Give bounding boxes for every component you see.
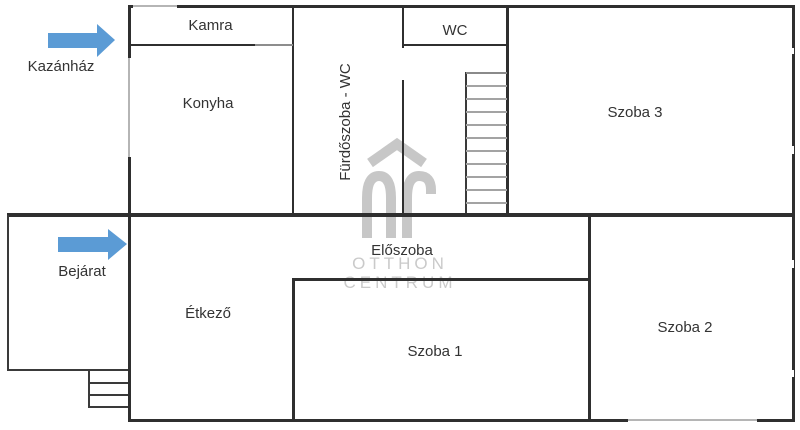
room-label-wc: WC: [403, 12, 507, 48]
bejarat-arrow-icon: [58, 237, 108, 252]
room-label-szoba3: Szoba 3: [520, 7, 750, 217]
wall-szoba1-left: [292, 278, 295, 421]
kazanhaz-arrow-icon: [48, 33, 97, 48]
room-label-eloszoba: Előszoba: [352, 240, 452, 260]
annotation-label-bejarat: Bejárat: [32, 261, 132, 281]
porch-left-wall: [7, 215, 9, 371]
stair-tread: [466, 111, 507, 113]
staircase-edge: [465, 72, 467, 213]
window-segment: [628, 419, 757, 421]
kazanhaz-arrow-head-icon: [97, 24, 115, 57]
window-notch: [792, 48, 794, 54]
room-label-furdoszoba: Fürdőszoba - WC: [335, 42, 355, 202]
stair-tread: [466, 85, 507, 87]
room-label-szoba1: Szoba 1: [385, 341, 485, 361]
stair-tread: [466, 98, 507, 100]
stair-tread: [466, 189, 507, 191]
floor-plan: OTTHON CENTRUM: [0, 0, 800, 430]
step-line: [88, 382, 128, 384]
step-edge: [88, 371, 90, 408]
window-segment: [133, 5, 177, 7]
annotation-label-kazanhaz: Kazánház: [11, 56, 111, 76]
room-label-etkezo: Étkező: [128, 303, 288, 323]
step-line: [88, 394, 128, 396]
stair-tread: [466, 137, 507, 139]
window-notch: [792, 146, 794, 154]
bejarat-arrow-head-icon: [108, 229, 127, 260]
step-line: [88, 406, 128, 408]
stair-tread: [466, 176, 507, 178]
watermark-letter-o-icon: [367, 176, 391, 238]
window-notch: [792, 370, 794, 377]
room-label-kamra: Kamra: [128, 8, 293, 42]
stair-tread: [466, 150, 507, 152]
watermark-line2: CENTRUM: [344, 273, 457, 292]
wall-szoba1-top: [292, 278, 590, 281]
room-label-szoba2: Szoba 2: [635, 317, 735, 337]
porch-bottom-wall: [7, 369, 128, 371]
window-notch: [792, 260, 794, 268]
watermark-letter-c-icon: [407, 176, 431, 238]
stair-tread: [466, 72, 507, 74]
stair-tread: [466, 163, 507, 165]
wall-szoba2-left: [588, 215, 591, 421]
stair-tread: [466, 124, 507, 126]
watermark-roof-icon: [370, 144, 424, 163]
wall-furdoszoba-hall: [402, 80, 404, 213]
room-label-konyha: Konyha: [128, 46, 288, 161]
stair-tread: [466, 202, 507, 204]
